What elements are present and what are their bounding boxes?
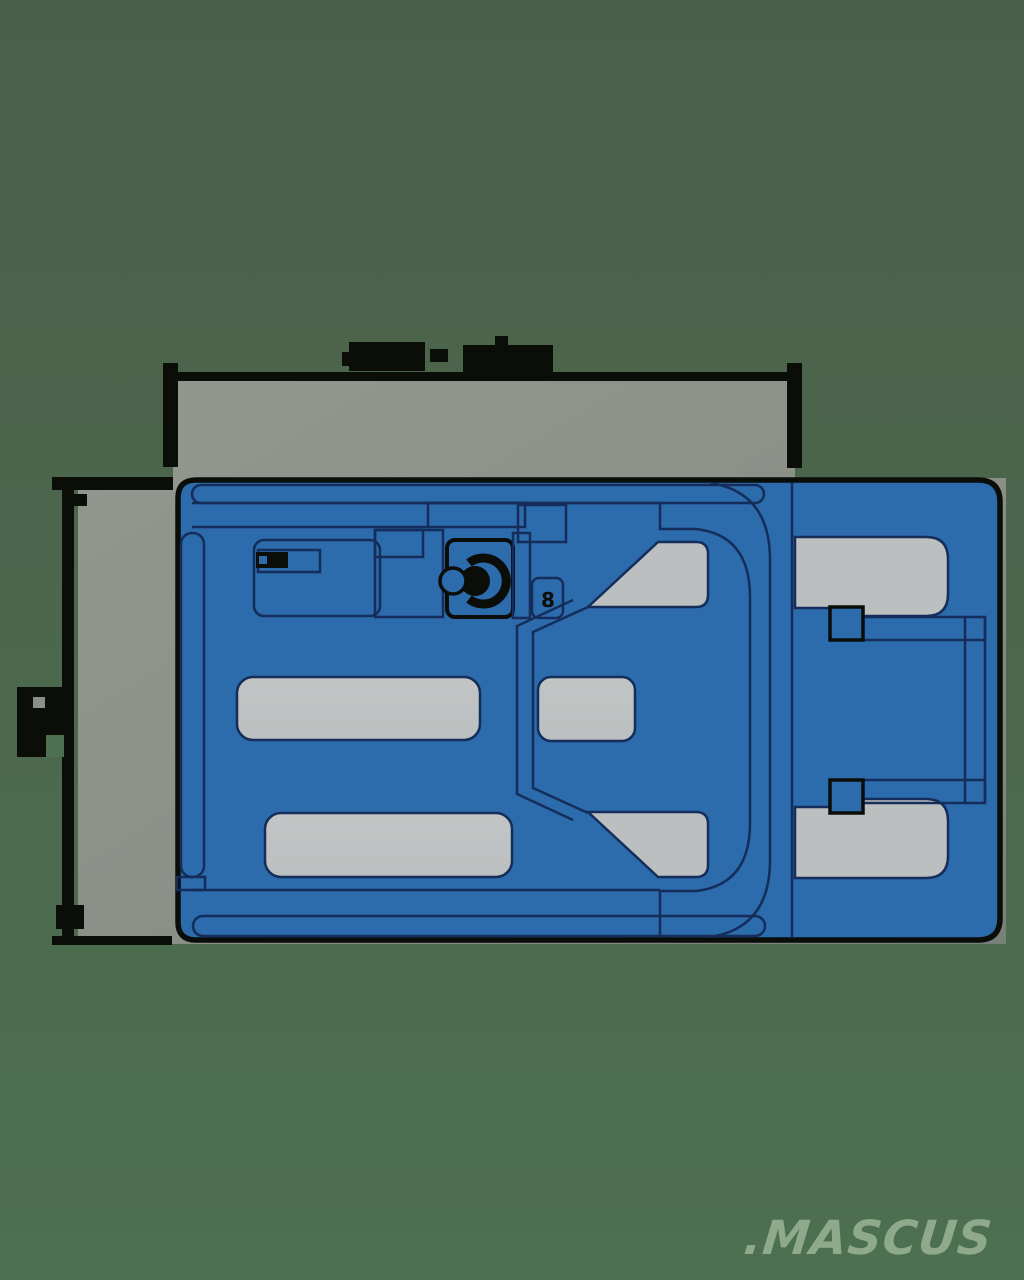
label-block [342, 352, 350, 366]
component-marking: 8 [541, 588, 555, 612]
wheel-well-bottom [795, 799, 948, 878]
diagram-page: 8 .MASCUS [0, 0, 1024, 1280]
label-block [349, 342, 425, 371]
machine-drawing: 8 [177, 480, 1000, 940]
arm-mount-block-top [830, 607, 863, 640]
left-dimension-top-tick [74, 494, 87, 506]
platform-slot-left [237, 677, 480, 740]
left-dimension-bottom-extension [52, 936, 172, 945]
label-block [495, 336, 508, 347]
left-dimension-top-extension [52, 477, 173, 490]
label-notch [46, 735, 64, 757]
platform-slot-center [538, 677, 635, 741]
steering-knob [440, 568, 466, 594]
top-dimension-line [170, 372, 795, 381]
label-notch [33, 697, 45, 708]
label-hyphen-block [430, 349, 448, 362]
top-dimension-left-tick [163, 363, 178, 467]
wheel-well-top [795, 537, 948, 616]
left-dimension-bottom-tick [56, 905, 84, 929]
platform-slot-bottom [265, 813, 512, 877]
label-block [463, 345, 553, 372]
top-dimension-right-tick [787, 363, 802, 468]
arm-mount-block-bottom [830, 780, 863, 813]
battery-connector-slot [259, 556, 267, 564]
dimension-drawing: 8 [0, 0, 1024, 1280]
left-dimension-label-redacted [17, 687, 64, 757]
mascus-watermark: .MASCUS [741, 1211, 995, 1266]
